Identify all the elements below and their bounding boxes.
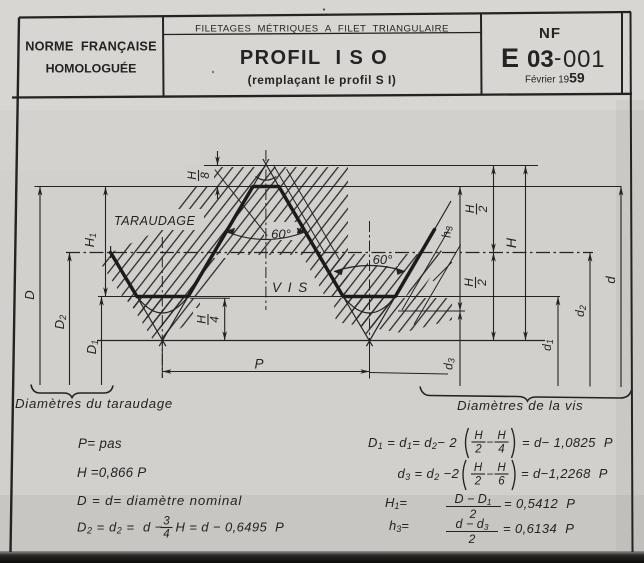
svg-text:H: H — [474, 430, 483, 442]
svg-text:V I S: V I S — [272, 280, 309, 295]
svg-text:P= pas: P= pas — [78, 436, 122, 451]
svg-text:PROFIL I S O: PROFIL I S O — [240, 47, 388, 69]
svg-text:60°: 60° — [271, 227, 291, 242]
svg-text:H =0,866 P: H =0,866 P — [77, 465, 146, 480]
svg-text:D − D1: D − D1 — [454, 492, 491, 507]
svg-text:D = d= diamètre nominal: D = d= diamètre nominal — [77, 493, 242, 508]
svg-text:d: d — [603, 276, 618, 284]
svg-text:4: 4 — [498, 444, 504, 456]
svg-text:6: 6 — [498, 476, 505, 488]
svg-text:2: 2 — [476, 205, 490, 213]
svg-text:H: H — [497, 430, 506, 442]
svg-text:E: E — [501, 43, 519, 73]
svg-text:03: 03 — [527, 46, 554, 73]
svg-text:D: D — [22, 290, 37, 299]
svg-text:(remplaçant le profil S I): (remplaçant le profil S I) — [248, 73, 397, 87]
svg-text:3: 3 — [163, 516, 170, 528]
svg-text:NORME FRANÇAISE: NORME FRANÇAISE — [25, 40, 157, 54]
svg-text:= 0,6134 P: = 0,6134 P — [503, 521, 574, 536]
svg-text:P: P — [254, 357, 263, 372]
svg-text:60°: 60° — [373, 252, 393, 267]
svg-text:H: H — [503, 237, 519, 248]
svg-text:2: 2 — [468, 532, 476, 546]
svg-text:Diamètres du taraudage: Diamètres du taraudage — [15, 396, 173, 411]
svg-text:2: 2 — [474, 444, 482, 456]
svg-text:NF: NF — [539, 25, 561, 42]
svg-text:FILETAGES MÉTRIQUES A FILET: FILETAGES MÉTRIQUES A FILET TRIANGULAIRE — [195, 24, 449, 35]
svg-text:−: − — [487, 467, 494, 481]
svg-text:H: H — [497, 462, 506, 474]
svg-text:8: 8 — [198, 172, 212, 179]
svg-text:−: − — [487, 435, 494, 449]
svg-text:H: H — [474, 462, 483, 474]
svg-text:= d− 1,0825 P: = d− 1,0825 P — [522, 435, 613, 450]
svg-text:4: 4 — [163, 529, 169, 541]
svg-text:2: 2 — [474, 476, 482, 488]
svg-text:2: 2 — [475, 279, 489, 287]
svg-text:Diamètres de la vis: Diamètres de la vis — [457, 398, 583, 413]
svg-text:HOMOLOGUÉE: HOMOLOGUÉE — [46, 61, 137, 76]
svg-text:4: 4 — [207, 316, 221, 323]
svg-text:-: - — [554, 45, 561, 70]
svg-text:= d−1,2268 P: = d−1,2268 P — [521, 466, 608, 481]
svg-text:TARAUDAGE: TARAUDAGE — [114, 214, 196, 228]
svg-text:= 0,5412 P: = 0,5412 P — [504, 496, 575, 511]
svg-text:H = d − 0,6495 P: H = d − 0,6495 P — [176, 520, 285, 535]
